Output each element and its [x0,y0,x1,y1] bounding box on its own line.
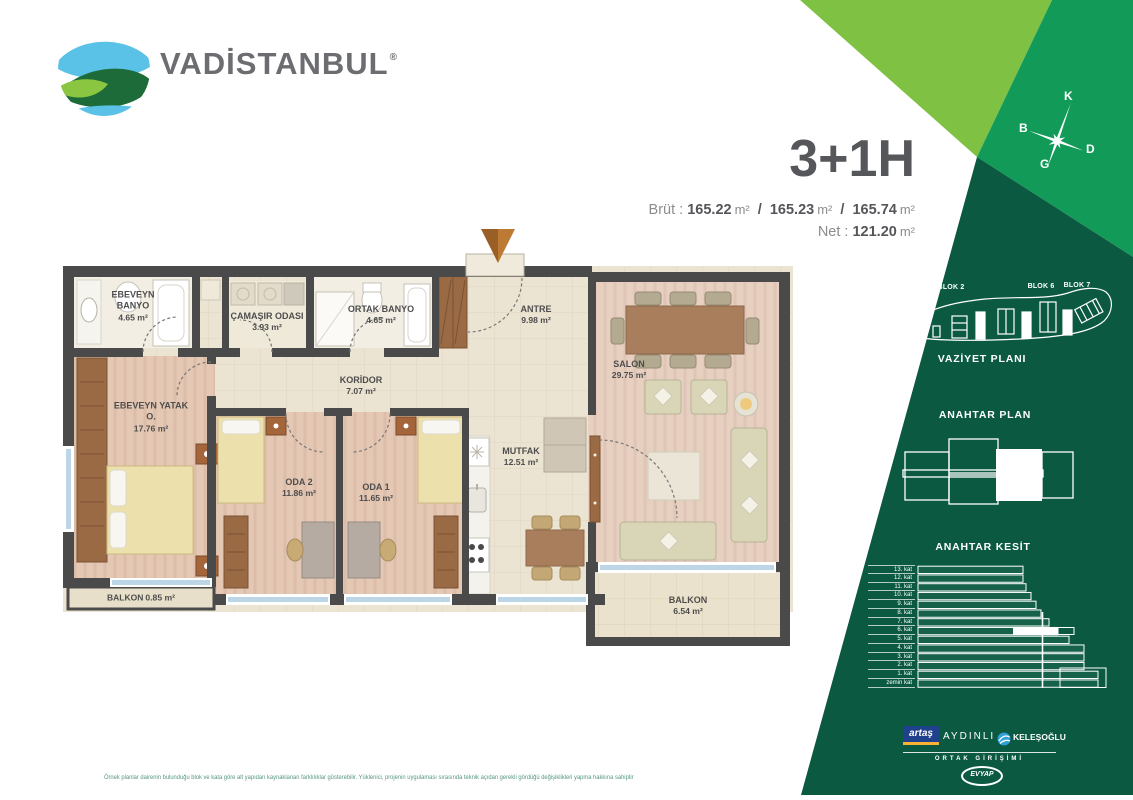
brochure-page: VADİSTANBUL® 3+1H Brüt : 165.22m² / 165.… [0,0,1133,800]
partner-divider-line [903,752,1056,753]
kesit-bar [918,610,1041,617]
room-label-ortak-banyo: ORTAK BANYO4.65 m² [343,304,419,326]
kesit-bar [918,566,1023,573]
kesit-bar [918,645,1084,652]
kesit-bar [918,601,1036,608]
compass-east-label: D [1086,142,1095,156]
evyap-logo: EVYAP [961,766,1003,786]
brand-logo-icon [54,22,154,124]
compass-south-label: G [1040,157,1049,171]
kesit-bar [918,671,1098,678]
room-label-mutfak: MUTFAK12.51 m² [483,446,559,468]
kesit-floor-label: 3. kat [868,653,915,662]
kesit-bar [918,654,1084,661]
registered-mark: ® [390,52,398,63]
room-label-balkon-large: BALKON6.54 m² [650,595,726,617]
kesit-bar [918,619,1049,626]
kesit-floor-label: 1. kat [868,670,915,679]
kelesoglu-logo: KELEŞOĞLU [1013,732,1066,742]
kesit-bar [918,680,1098,687]
antre-wardrobe [439,276,467,348]
blok-label-7: BLOK 7 [1057,282,1097,289]
room-label-oda1: ODA 111.65 m² [338,482,414,504]
room-label-koridor: KORİDOR7.07 m² [323,375,399,397]
kesit-floor-label: 10. kat [868,591,915,600]
kesit-bar [918,575,1023,582]
compass-north-label: K [1064,89,1073,103]
key-plan-title: ANAHTAR PLAN [915,409,1055,421]
brand-name: VADİSTANBUL® [160,46,398,82]
unit-type-title: 3+1H [789,133,915,185]
kesit-floor-label: 13. kat [868,565,915,574]
room-label-balkon-small: BALKON0.85 m² [106,593,176,604]
room-label-camasir-odasi: ÇAMAŞIR ODASI3.93 m² [229,311,305,333]
key-section-title: ANAHTAR KESİT [913,541,1053,553]
artas-logo: artaş [903,726,939,745]
kesit-bar [918,636,1069,643]
area-summary: Brüt : 165.22m² / 165.23m² / 165.74m² Ne… [649,199,915,243]
kesit-floor-label: 11. kat [868,583,915,592]
room-label-salon: SALON29.75 m² [591,359,667,381]
entrance-door-leaf [466,254,524,276]
kesit-bar [918,592,1031,599]
room-label-ebeveyn-banyo: EBEVEYN BANYO4.65 m² [95,289,171,322]
joint-venture-label: ORTAK GİRİŞİMİ [903,756,1056,762]
kesit-floor-label: 12. kat [868,574,915,583]
kesit-floor-label: 2. kat [868,661,915,670]
blok-label-2: BLOK 2 [931,284,971,291]
kesit-floor-label: 7. kat [868,618,915,627]
kesit-floor-label: 4. kat [868,644,915,653]
aydinli-logo: AYDINLI [943,731,995,742]
kesit-highlight-unit [1013,627,1058,634]
kesit-floor-label: 8. kat [868,609,915,618]
brut-area-line: Brüt : 165.22m² / 165.23m² / 165.74m² [649,199,915,221]
net-area-line: Net : 121.20m² [649,221,915,243]
floor-plan-drawing [63,229,793,646]
kesit-floor-label: 6. kat [868,626,915,635]
salon-door-leaf [590,436,600,522]
blok-label-6: BLOK 6 [1021,283,1061,290]
site-plan-title: VAZİYET PLANI [912,353,1052,365]
room-label-ebeveyn-yatak: EBEVEYN YATAK O.17.76 m² [113,400,189,433]
disclaimer-text: Örnek planlar dairenin bulunduğu blok ve… [104,774,634,781]
compass-west-label: B [1019,121,1028,135]
kesit-floor-label: 5. kat [868,635,915,644]
kesit-bar [918,662,1084,669]
room-label-antre: ANTRE9.98 m² [498,304,574,326]
room-label-oda2: ODA 211.86 m² [261,477,337,499]
kelesoglu-globe-icon [997,732,1011,746]
kesit-floor-label: zemin kat [868,679,915,688]
kesit-floor-label: 9. kat [868,600,915,609]
kesit-bar [918,584,1026,591]
